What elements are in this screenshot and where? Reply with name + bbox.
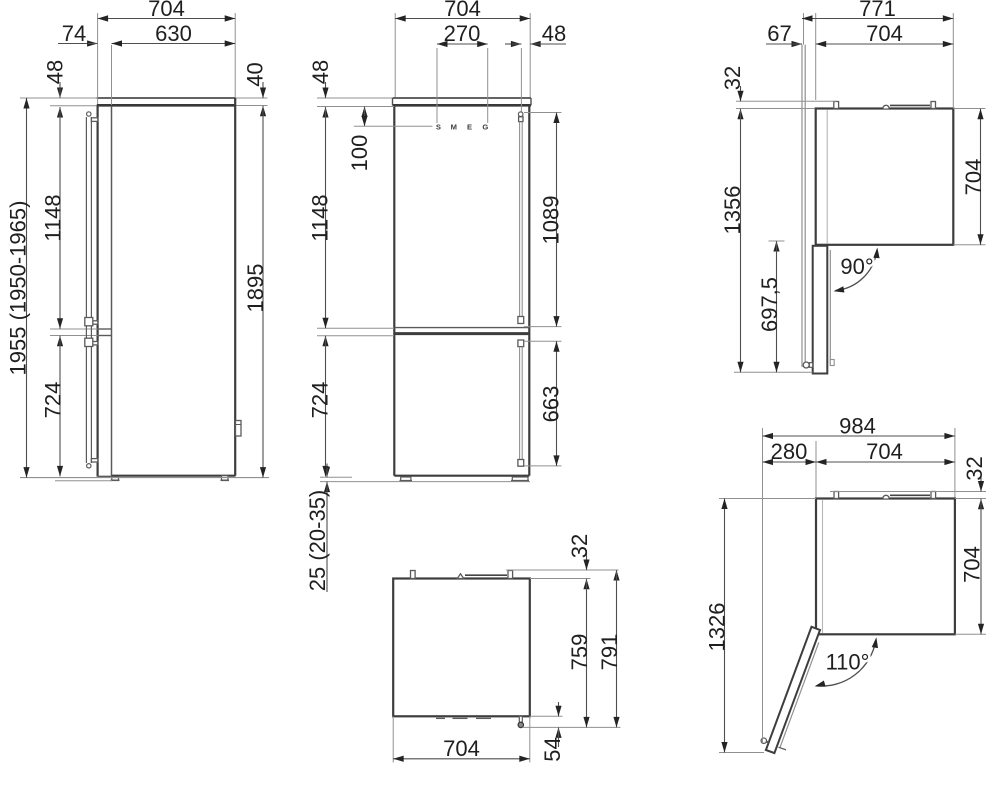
svg-text:704: 704 xyxy=(866,439,903,464)
svg-text:1089: 1089 xyxy=(538,196,563,245)
svg-text:280: 280 xyxy=(771,439,808,464)
svg-text:E: E xyxy=(467,122,472,131)
svg-text:32: 32 xyxy=(720,66,745,90)
svg-text:984: 984 xyxy=(839,414,876,439)
svg-text:67: 67 xyxy=(767,21,791,46)
svg-text:771: 771 xyxy=(859,0,896,21)
svg-text:74: 74 xyxy=(62,21,86,46)
svg-text:32: 32 xyxy=(962,456,987,480)
svg-text:704: 704 xyxy=(960,546,985,583)
svg-text:1326: 1326 xyxy=(705,603,730,652)
svg-text:704: 704 xyxy=(444,0,481,21)
svg-text:1356: 1356 xyxy=(720,186,745,235)
svg-text:630: 630 xyxy=(155,21,192,46)
svg-text:663: 663 xyxy=(538,386,563,423)
svg-text:791: 791 xyxy=(597,634,622,671)
svg-text:759: 759 xyxy=(567,634,592,671)
svg-text:1955 (1950-1965): 1955 (1950-1965) xyxy=(6,201,31,376)
svg-text:54: 54 xyxy=(540,737,565,761)
svg-text:25 (20-35): 25 (20-35) xyxy=(305,490,330,592)
svg-text:M: M xyxy=(451,122,457,131)
svg-text:48: 48 xyxy=(43,60,68,84)
svg-text:48: 48 xyxy=(308,60,333,84)
svg-text:724: 724 xyxy=(40,382,65,419)
svg-text:704: 704 xyxy=(961,159,986,196)
svg-text:704: 704 xyxy=(148,0,185,21)
svg-text:G: G xyxy=(482,122,488,131)
svg-text:1895: 1895 xyxy=(243,264,268,313)
svg-text:1148: 1148 xyxy=(307,194,332,241)
svg-text:40: 40 xyxy=(243,62,268,86)
svg-text:110°: 110° xyxy=(826,650,870,675)
svg-text:32: 32 xyxy=(567,534,592,558)
svg-text:724: 724 xyxy=(307,382,332,419)
svg-text:48: 48 xyxy=(542,21,566,46)
svg-text:90°: 90° xyxy=(840,254,873,279)
svg-text:697,5: 697,5 xyxy=(757,277,782,332)
svg-text:704: 704 xyxy=(443,736,480,761)
svg-text:270: 270 xyxy=(444,21,481,46)
svg-text:S: S xyxy=(436,122,441,131)
svg-text:704: 704 xyxy=(866,21,903,46)
svg-text:100: 100 xyxy=(347,135,372,172)
svg-text:1148: 1148 xyxy=(40,194,65,241)
